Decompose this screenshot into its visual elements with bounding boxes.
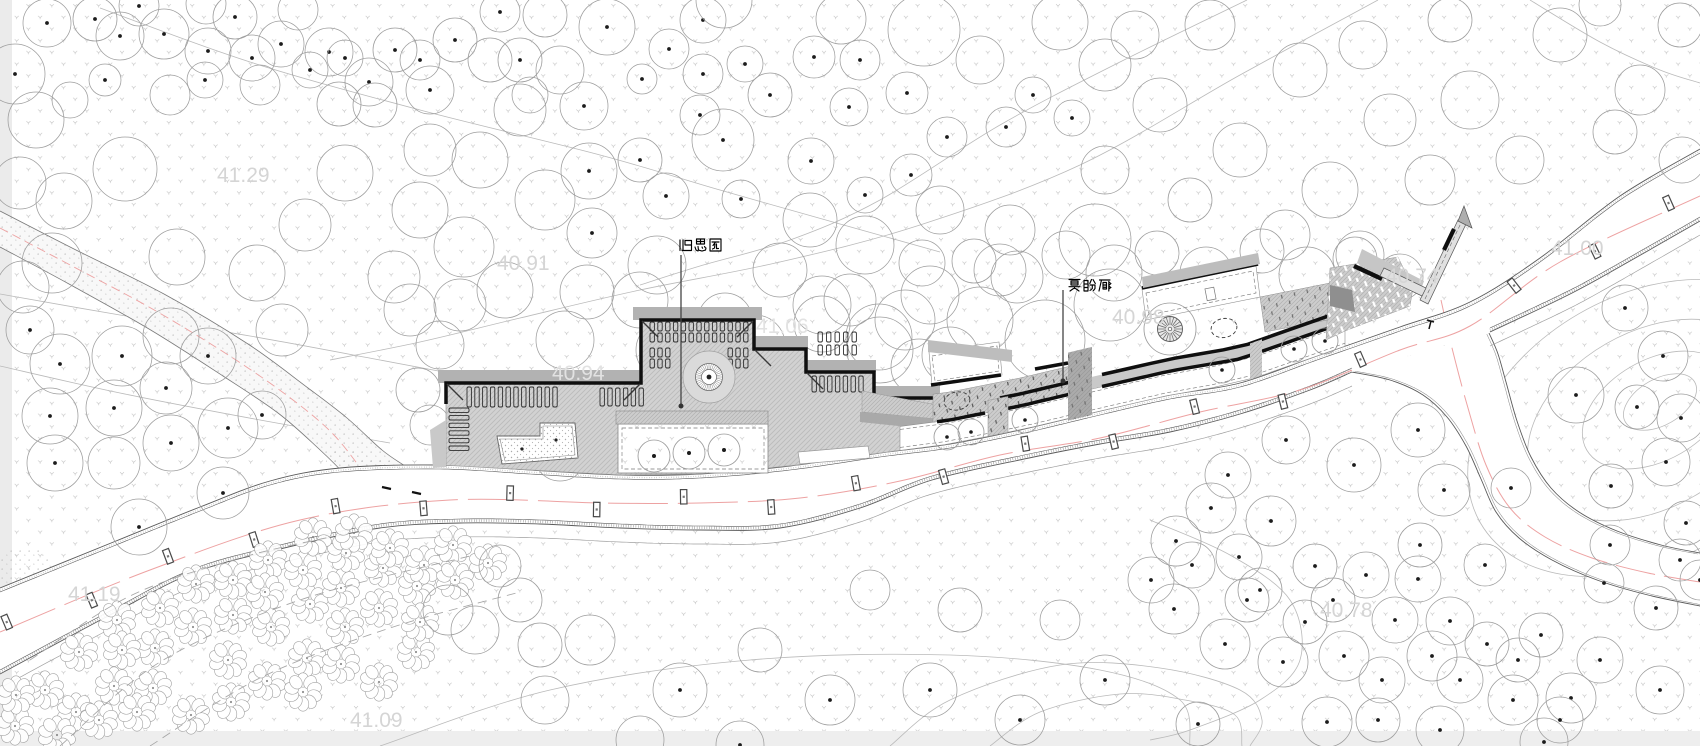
svg-text:41.06: 41.06 [756, 315, 809, 338]
svg-text:41.00: 41.00 [1551, 237, 1604, 260]
svg-text:40.74: 40.74 [1386, 265, 1439, 288]
svg-text:41.29: 41.29 [217, 164, 270, 187]
svg-text:41.19: 41.19 [68, 583, 121, 606]
svg-text:41.09: 41.09 [350, 709, 403, 732]
svg-text:40.78: 40.78 [1320, 599, 1373, 622]
svg-text:40.94: 40.94 [552, 362, 605, 385]
svg-text:40.98: 40.98 [1112, 306, 1165, 329]
svg-text:40.91: 40.91 [497, 252, 550, 275]
